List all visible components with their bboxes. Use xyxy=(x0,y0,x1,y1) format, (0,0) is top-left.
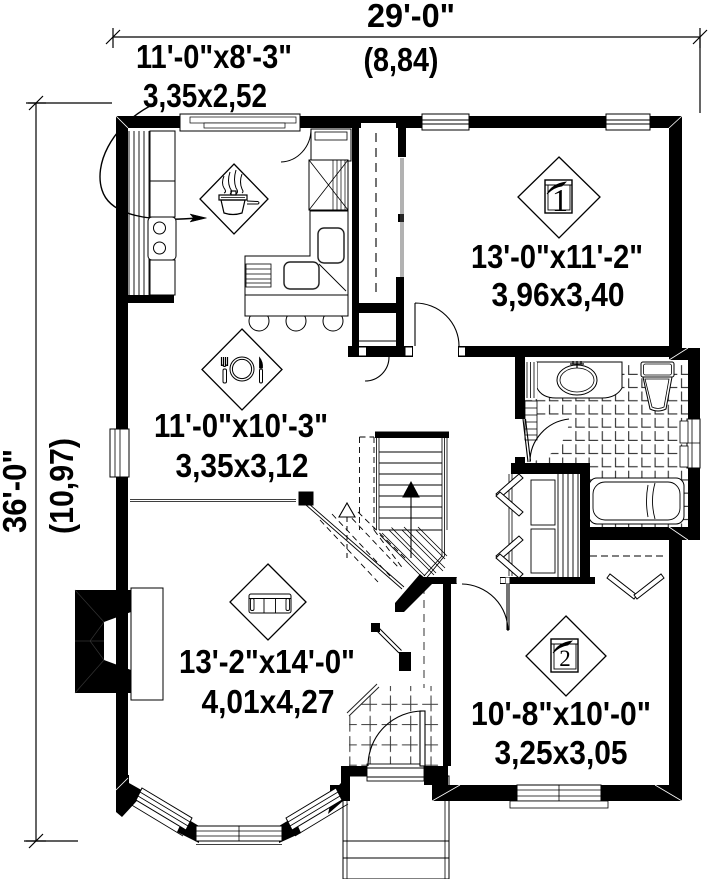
svg-text:(10,97): (10,97) xyxy=(43,438,80,534)
svg-text:1: 1 xyxy=(552,182,568,218)
svg-text:3,35x2,52: 3,35x2,52 xyxy=(143,77,267,114)
svg-text:11'-0"x10'-3": 11'-0"x10'-3" xyxy=(154,407,328,444)
svg-text:3,96x3,40: 3,96x3,40 xyxy=(492,276,625,313)
svg-text:36'-0": 36'-0" xyxy=(0,449,33,533)
svg-text:2: 2 xyxy=(559,646,571,671)
svg-text:3,25x3,05: 3,25x3,05 xyxy=(495,734,628,771)
svg-text:13'-2"x14'-0": 13'-2"x14'-0" xyxy=(179,643,355,680)
svg-text:11'-0"x8'-3": 11'-0"x8'-3" xyxy=(136,38,292,75)
svg-text:(8,84): (8,84) xyxy=(364,41,439,78)
svg-text:29'-0": 29'-0" xyxy=(367,0,455,34)
svg-text:3,35x3,12: 3,35x3,12 xyxy=(176,447,309,484)
svg-text:13'-0"x11'-2": 13'-0"x11'-2" xyxy=(471,238,643,275)
svg-text:4,01x4,27: 4,01x4,27 xyxy=(202,683,335,720)
svg-text:10'-8"x10'-0": 10'-8"x10'-0" xyxy=(471,695,651,732)
